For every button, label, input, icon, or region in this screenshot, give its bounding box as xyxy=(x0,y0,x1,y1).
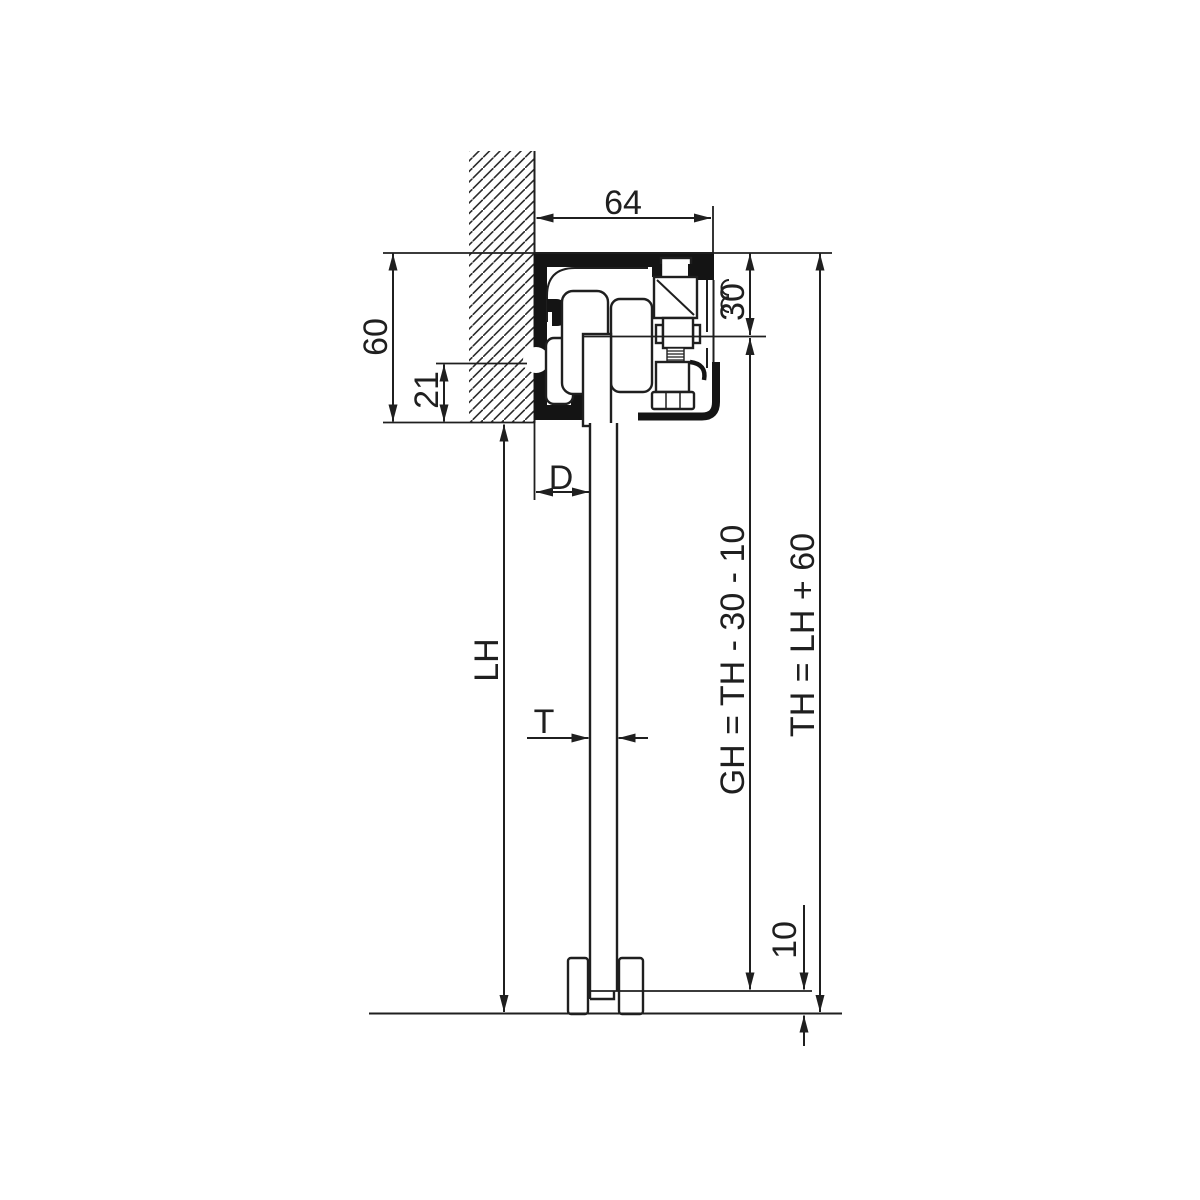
door-panel-body xyxy=(590,423,617,993)
clip-foot-left xyxy=(652,264,662,277)
dim-track-height-60: 60 xyxy=(357,254,395,422)
dim-door-height-GH: GH = TH - 30 - 10 xyxy=(714,338,752,990)
bolt-stem xyxy=(663,318,693,348)
adjustment-clip-block xyxy=(661,258,691,278)
door-track-section-drawing: 64 60 21 30 D T LH GH = T xyxy=(0,0,1200,1200)
technical-drawing-page: 64 60 21 30 D T LH GH = T xyxy=(0,0,1200,1200)
dim-floor-clearance-10: 10 xyxy=(766,905,804,1046)
dim-60-label: 60 xyxy=(357,318,395,356)
hex-nut xyxy=(652,392,694,409)
dim-30-label: 30 xyxy=(714,283,752,321)
dim-top-clearance-30: 30 xyxy=(714,254,752,336)
floor-guide-post-right xyxy=(619,958,643,1014)
wall-hatching xyxy=(469,151,534,423)
track-top-band xyxy=(534,252,662,267)
dim-door-thickness-T: T xyxy=(527,703,648,741)
roller-wheel-right xyxy=(611,299,652,392)
dim-10-label: 10 xyxy=(766,921,804,959)
roller-carriage xyxy=(546,277,704,426)
wall-section xyxy=(469,151,535,423)
dim-T-label: T xyxy=(534,703,555,741)
dim-21-label: 21 xyxy=(408,371,446,409)
dim-D-label: D xyxy=(549,459,574,497)
clip-foot-right xyxy=(688,264,696,277)
door-panel xyxy=(590,423,617,999)
door-hanger-plate xyxy=(583,334,611,426)
dim-wall-to-door-D: D xyxy=(536,459,589,497)
dim-GH-label: GH = TH - 30 - 10 xyxy=(714,525,752,796)
threaded-rod xyxy=(667,348,684,363)
dim-64-label: 64 xyxy=(604,184,642,222)
anti-derail-hook xyxy=(690,362,704,380)
adjustment-nut-body xyxy=(656,362,689,392)
dim-fixing-height-21: 21 xyxy=(408,365,446,422)
dim-TH-label: TH = LH + 60 xyxy=(784,533,822,737)
dim-opening-height-LH: LH xyxy=(468,425,506,1013)
floor-guide-post-left xyxy=(568,958,588,1014)
dim-track-width-64: 64 xyxy=(537,184,712,222)
dim-total-height-TH: TH = LH + 60 xyxy=(784,254,822,1013)
dim-LH-label: LH xyxy=(468,638,506,681)
